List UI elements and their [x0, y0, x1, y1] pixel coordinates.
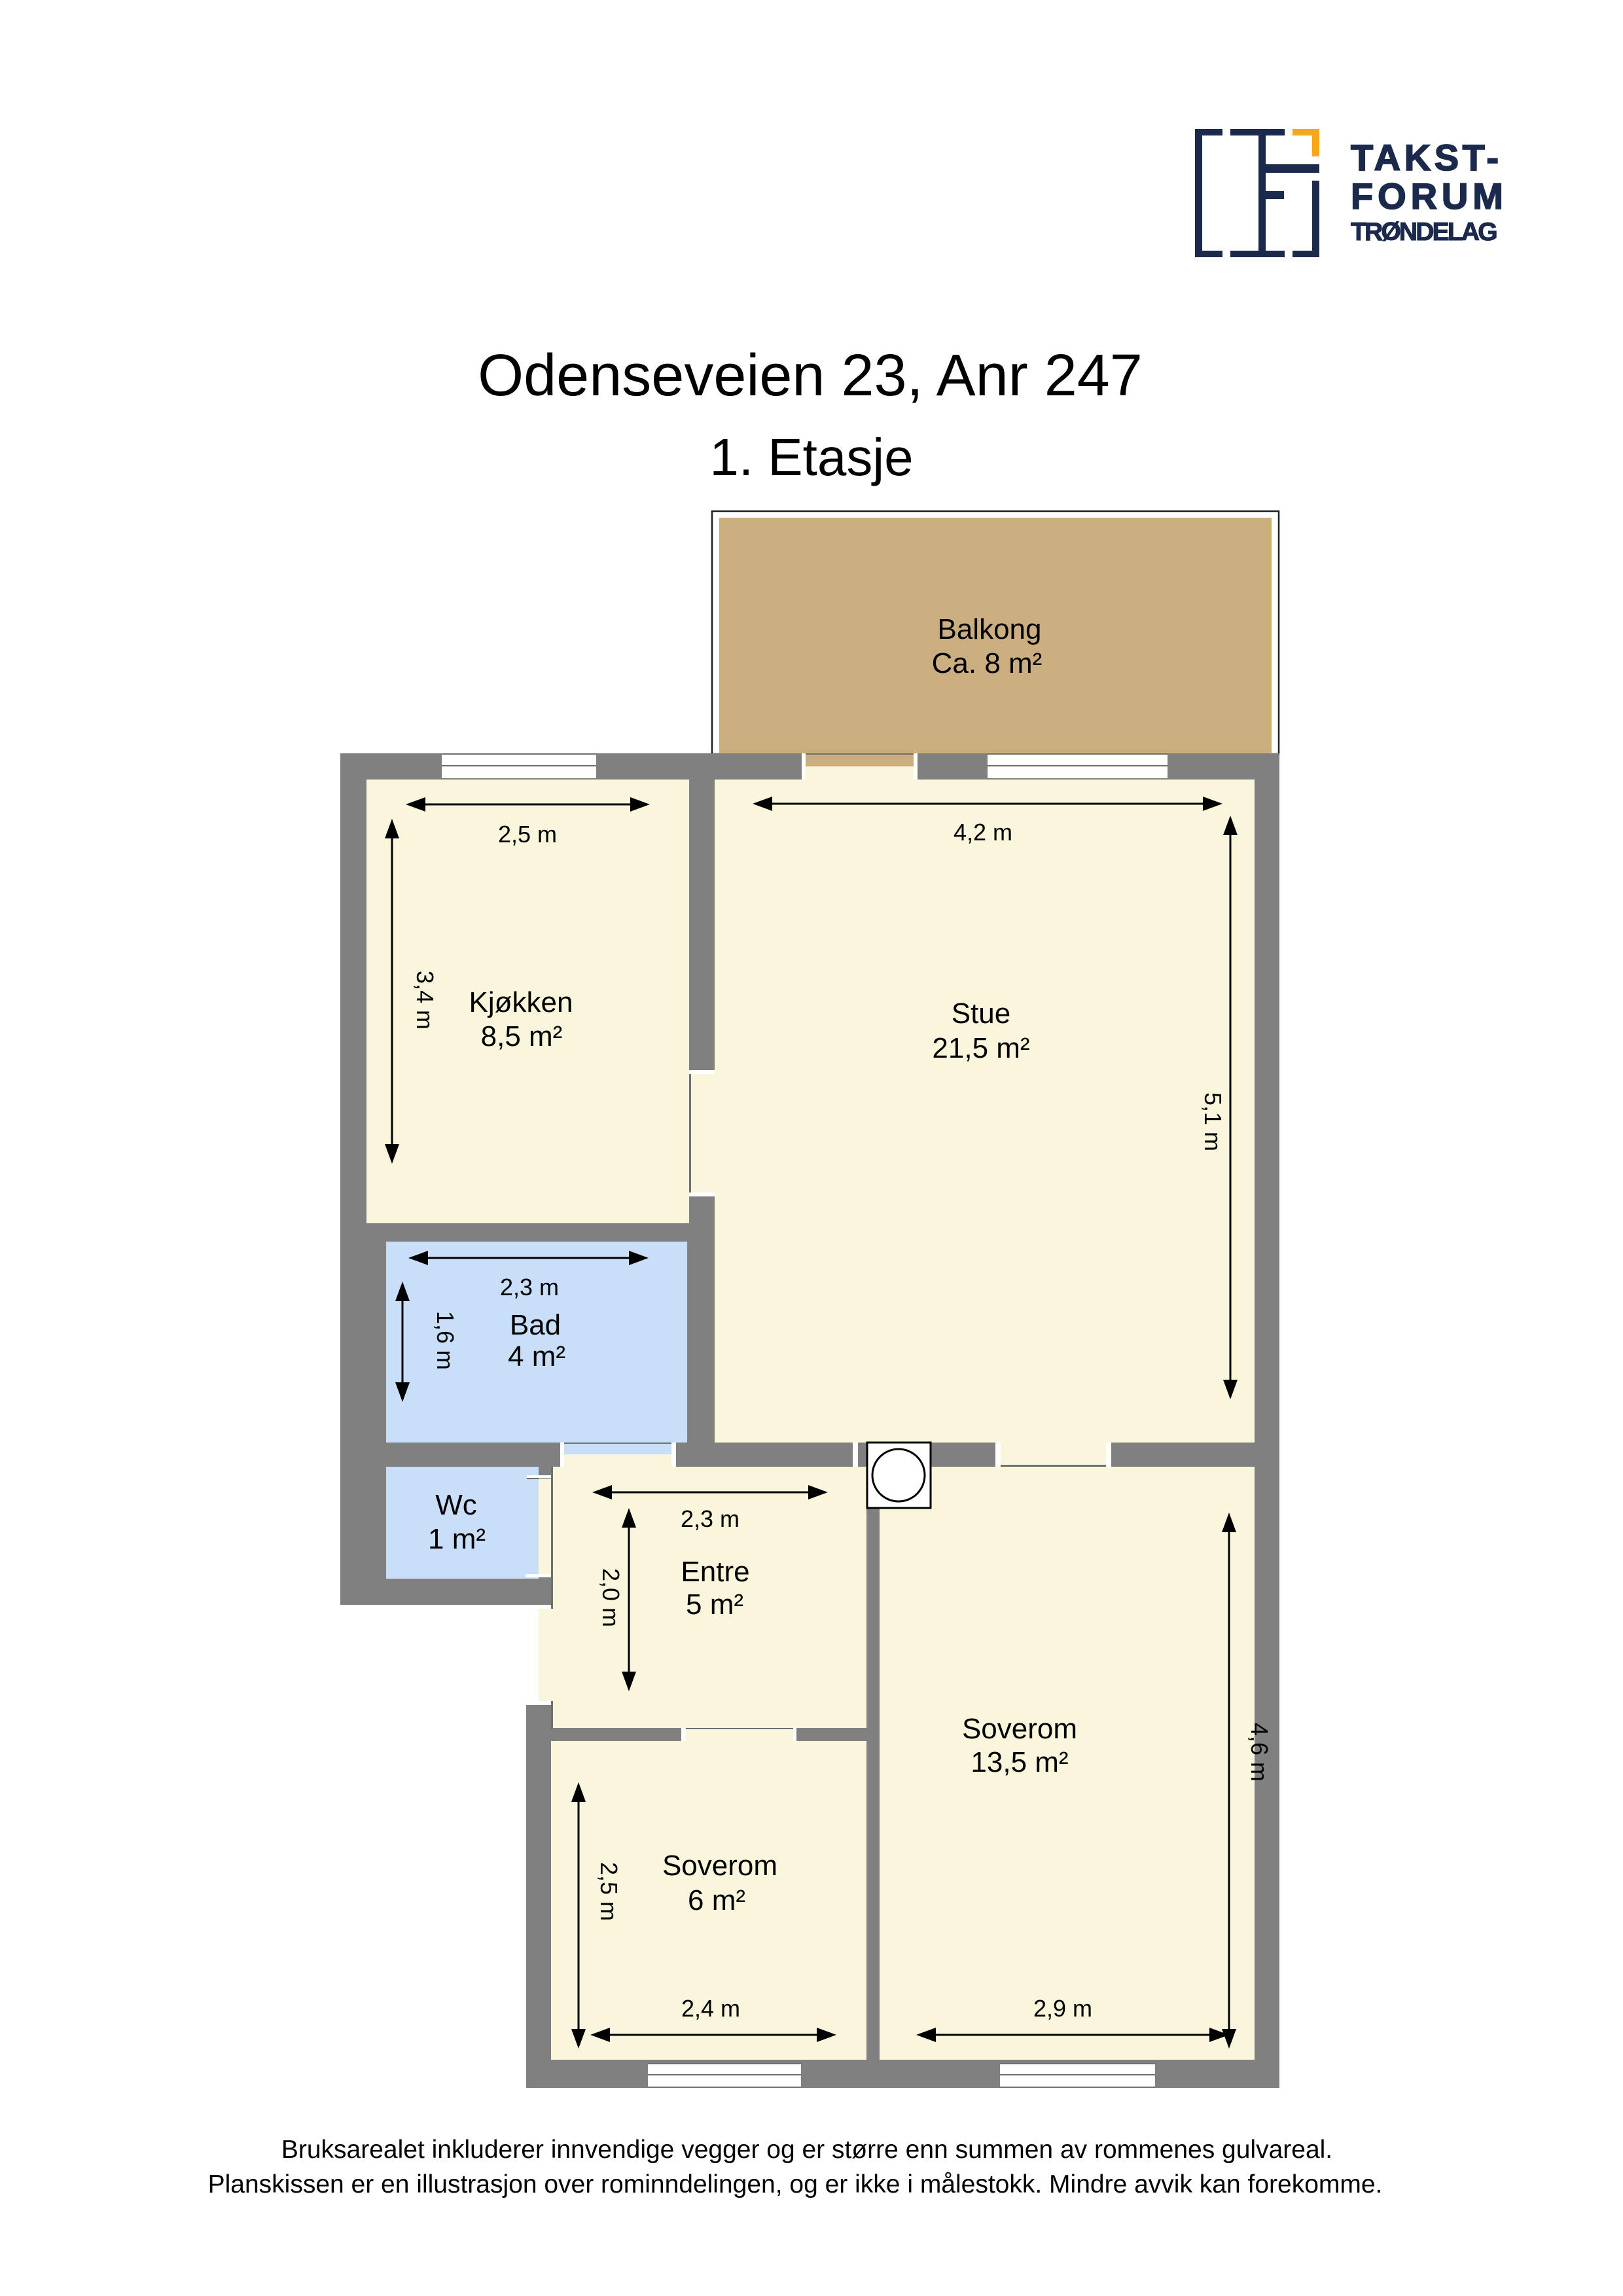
- svg-text:13,5 m²: 13,5 m²: [971, 1746, 1068, 1778]
- svg-text:Soverom: Soverom: [662, 1850, 777, 1882]
- svg-text:Soverom: Soverom: [962, 1713, 1077, 1745]
- svg-text:Entre: Entre: [681, 1556, 749, 1588]
- svg-text:Bruksarealet inkluderer innven: Bruksarealet inkluderer innvendige vegge…: [281, 2136, 1332, 2164]
- svg-text:5,1 m: 5,1 m: [1200, 1092, 1226, 1151]
- svg-text:1 m²: 1 m²: [428, 1523, 486, 1555]
- svg-text:4,2 m: 4,2 m: [954, 819, 1012, 846]
- svg-text:FORUM: FORUM: [1351, 175, 1508, 217]
- svg-text:2,0 m: 2,0 m: [597, 1568, 624, 1627]
- svg-text:TAKST-: TAKST-: [1351, 137, 1503, 178]
- svg-text:6 m²: 6 m²: [688, 1884, 745, 1916]
- svg-text:Wc: Wc: [435, 1489, 477, 1521]
- svg-text:Ca. 8 m²: Ca. 8 m²: [932, 647, 1043, 679]
- svg-text:4 m²: 4 m²: [508, 1340, 565, 1372]
- svg-text:Stue: Stue: [952, 997, 1011, 1030]
- svg-text:Balkong: Balkong: [937, 613, 1041, 645]
- svg-text:2,5 m: 2,5 m: [596, 1862, 622, 1921]
- svg-text:2,3 m: 2,3 m: [681, 1505, 740, 1532]
- svg-text:2,3 m: 2,3 m: [500, 1274, 559, 1300]
- svg-text:2,9 m: 2,9 m: [1033, 1995, 1092, 2022]
- svg-text:2,5 m: 2,5 m: [498, 821, 557, 848]
- svg-text:1. Etasje: 1. Etasje: [709, 428, 913, 486]
- svg-text:4,6 m: 4,6 m: [1246, 1723, 1273, 1782]
- svg-text:Bad: Bad: [510, 1309, 561, 1341]
- svg-text:3,4 m: 3,4 m: [412, 971, 438, 1030]
- svg-text:5 m²: 5 m²: [686, 1588, 743, 1621]
- svg-text:21,5 m²: 21,5 m²: [932, 1032, 1029, 1064]
- svg-text:Kjøkken: Kjøkken: [469, 986, 573, 1018]
- svg-text:1,6 m: 1,6 m: [432, 1311, 459, 1370]
- svg-text:Odenseveien 23, Anr 247: Odenseveien 23, Anr 247: [478, 343, 1143, 408]
- svg-text:8,5 m²: 8,5 m²: [481, 1020, 563, 1052]
- svg-text:Planskissen er en illustrasjon: Planskissen er en illustrasjon over romi…: [208, 2170, 1383, 2198]
- svg-text:TRØNDELAG: TRØNDELAG: [1351, 218, 1496, 246]
- svg-text:2,4 m: 2,4 m: [681, 1995, 740, 2022]
